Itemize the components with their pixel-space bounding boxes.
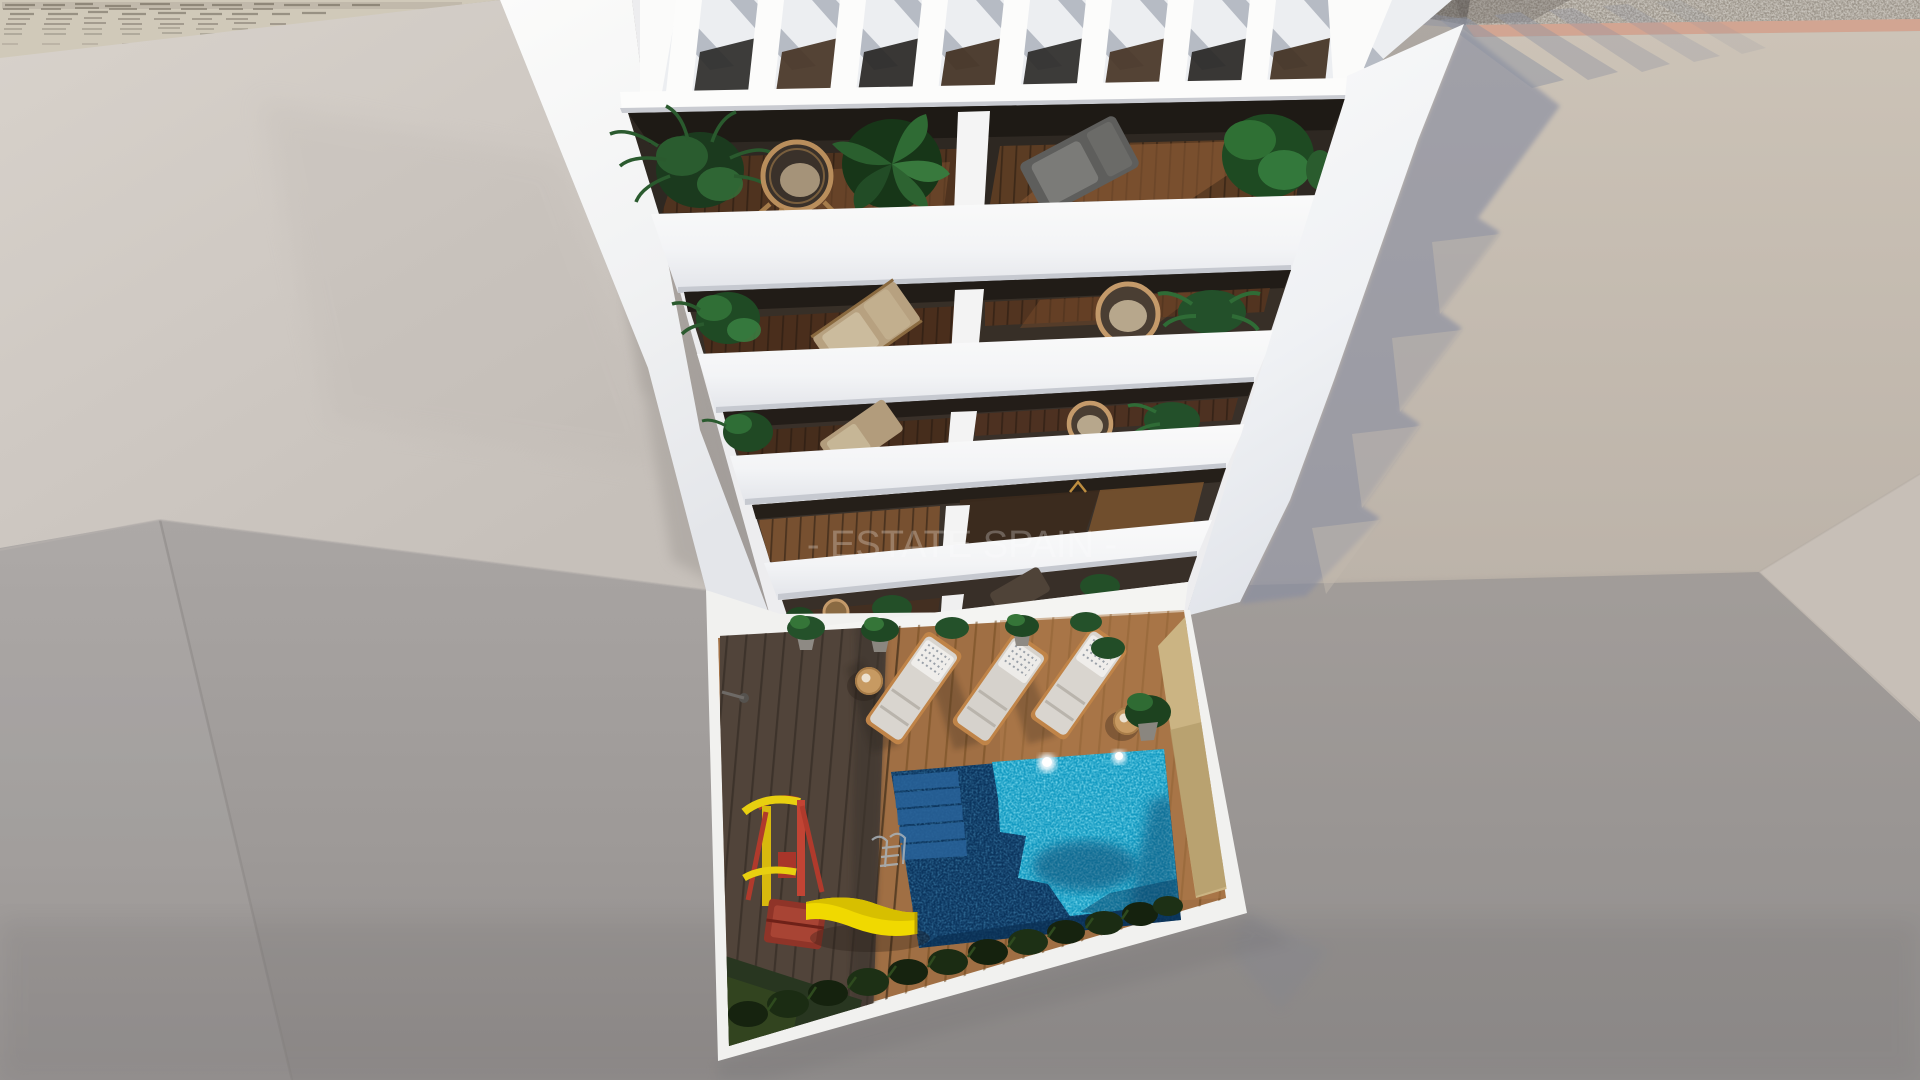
svg-text:- ESTATE SPAIN -: - ESTATE SPAIN - — [807, 524, 1117, 566]
